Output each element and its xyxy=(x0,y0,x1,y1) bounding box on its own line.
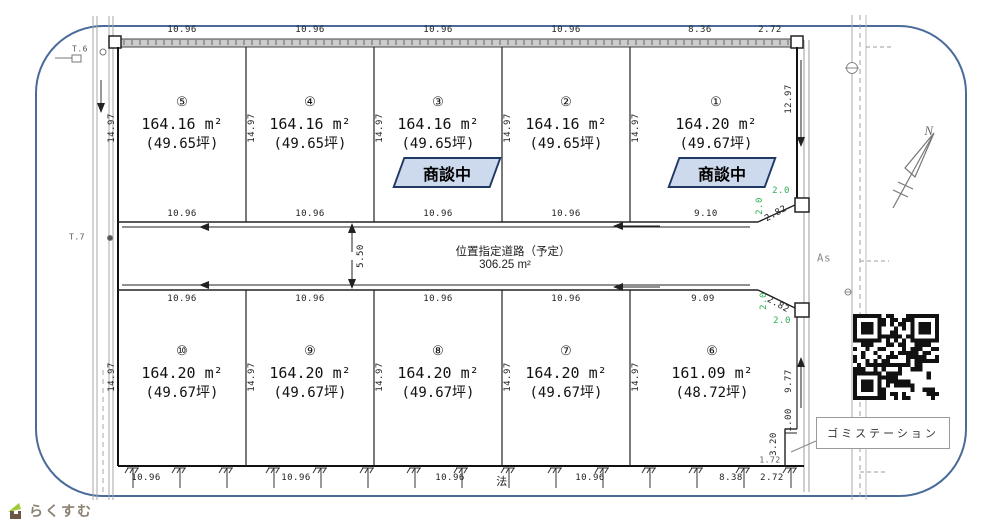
negotiation-banner-lot3: 商談中 xyxy=(398,157,496,188)
lot-9: ⑨ 164.20 m² (49.67坪) xyxy=(240,344,380,403)
lot-area: 161.09 m² xyxy=(642,364,782,384)
dim-top-5: 8.36 xyxy=(688,25,712,35)
lot-number: ④ xyxy=(240,95,380,112)
lot-tsubo: (49.65坪) xyxy=(240,135,380,153)
lot-area: 164.16 m² xyxy=(368,115,508,135)
dim-road-upper-2: 10.96 xyxy=(295,209,325,219)
lot-tsubo: (49.65坪) xyxy=(496,135,636,153)
lot-area: 164.16 m² xyxy=(112,115,252,135)
lot-area: 164.20 m² xyxy=(240,364,380,384)
site-plan-page: 10.96 10.96 10.96 10.96 8.36 2.72 10.96 … xyxy=(0,0,998,529)
dim-bottom-4: 10.96 xyxy=(575,473,605,483)
dim-road-upper-4: 10.96 xyxy=(551,209,581,219)
lot-number: ③ xyxy=(368,95,508,112)
lot-1: ① 164.20 m² (49.67坪) xyxy=(646,95,786,154)
dim-bottom-2: 10.96 xyxy=(281,473,311,483)
lot-tsubo: (49.67坪) xyxy=(240,384,380,402)
dim-road-lower-1: 10.96 xyxy=(167,294,197,304)
lot-3: ③ 164.16 m² (49.65坪) xyxy=(368,95,508,154)
lot-area: 164.20 m² xyxy=(112,364,252,384)
lot-number: ⑥ xyxy=(642,344,782,361)
lot-7: ⑦ 164.20 m² (49.67坪) xyxy=(496,344,636,403)
dim-road-upper-1: 10.96 xyxy=(167,209,197,219)
lot-area: 164.16 m² xyxy=(496,115,636,135)
north-label: N xyxy=(924,123,933,139)
dim-road-upper-5: 9.10 xyxy=(694,209,718,219)
lot-2: ② 164.16 m² (49.65坪) xyxy=(496,95,636,154)
banner-label: 商談中 xyxy=(673,157,771,188)
lot-number: ⑨ xyxy=(240,344,380,361)
negotiation-banner-lot1: 商談中 xyxy=(673,157,771,188)
dim-road-lower-3: 10.96 xyxy=(423,294,453,304)
dim-road-lower-4: 10.96 xyxy=(551,294,581,304)
lot-number: ⑩ xyxy=(112,344,252,361)
dim-top-2: 10.96 xyxy=(295,25,325,35)
lot-tsubo: (49.65坪) xyxy=(368,135,508,153)
dim-notch-offset: 1.72 xyxy=(759,456,780,465)
dim-road-lower-2: 10.96 xyxy=(295,294,325,304)
slope-label: 法 xyxy=(496,473,508,489)
dim-bottom-1: 10.96 xyxy=(131,473,161,483)
dim-top-1: 10.96 xyxy=(167,25,197,35)
road-surface-label: As xyxy=(817,252,831,265)
survey-point-t7: T.7 xyxy=(69,233,85,242)
dim-road-width: 5.50 xyxy=(356,244,366,268)
dim-bottom-6: 2.72 xyxy=(760,473,784,483)
dim-top-6: 2.72 xyxy=(758,25,782,35)
lot-area: 164.20 m² xyxy=(646,115,786,135)
corner-leg-upper-h: 2.0 xyxy=(772,186,790,196)
garbage-station-label: ゴミステーション xyxy=(816,417,950,449)
dim-bottom-5: 8.38 xyxy=(719,473,743,483)
lot-tsubo: (48.72坪) xyxy=(642,384,782,402)
dim-right-lower: 9.77 xyxy=(784,369,794,393)
lot-number: ⑧ xyxy=(368,344,508,361)
dim-bottom-3: 10.96 xyxy=(435,473,465,483)
dim-notch-height: 3.20 xyxy=(769,432,779,456)
lot-area: 164.20 m² xyxy=(368,364,508,384)
house-icon xyxy=(7,503,24,520)
lot-10: ⑩ 164.20 m² (49.67坪) xyxy=(112,344,252,403)
lot-tsubo: (49.67坪) xyxy=(112,384,252,402)
corner-leg-lower-h: 2.0 xyxy=(773,316,791,326)
lot-number: ⑤ xyxy=(112,95,252,112)
dim-top-4: 10.96 xyxy=(551,25,581,35)
lot-area: 164.20 m² xyxy=(496,364,636,384)
lot-area: 164.16 m² xyxy=(240,115,380,135)
lot-number: ⑦ xyxy=(496,344,636,361)
dim-road-lower-5: 9.09 xyxy=(691,294,715,304)
qr-code xyxy=(853,314,939,400)
lot-5: ⑤ 164.16 m² (49.65坪) xyxy=(112,95,252,154)
lot-number: ② xyxy=(496,95,636,112)
banner-label: 商談中 xyxy=(398,157,496,188)
lot-tsubo: (49.65坪) xyxy=(112,135,252,153)
site-logo: らくすむ xyxy=(7,501,93,521)
dim-notch-step: 1.00 xyxy=(784,408,794,432)
survey-point-t6: T.6 xyxy=(72,45,88,54)
road-area: 306.25 m² xyxy=(479,259,531,271)
dim-top-3: 10.96 xyxy=(423,25,453,35)
lot-4: ④ 164.16 m² (49.65坪) xyxy=(240,95,380,154)
corner-leg-upper-v: 2.0 xyxy=(755,197,765,215)
lot-8: ⑧ 164.20 m² (49.67坪) xyxy=(368,344,508,403)
road-name: 位置指定道路（予定） xyxy=(456,243,571,259)
lot-tsubo: (49.67坪) xyxy=(496,384,636,402)
lot-tsubo: (49.67坪) xyxy=(368,384,508,402)
logo-text: らくすむ xyxy=(29,501,93,521)
lot-number: ① xyxy=(646,95,786,112)
dim-road-upper-3: 10.96 xyxy=(423,209,453,219)
lot-6: ⑥ 161.09 m² (48.72坪) xyxy=(642,344,782,403)
lot-tsubo: (49.67坪) xyxy=(646,135,786,153)
